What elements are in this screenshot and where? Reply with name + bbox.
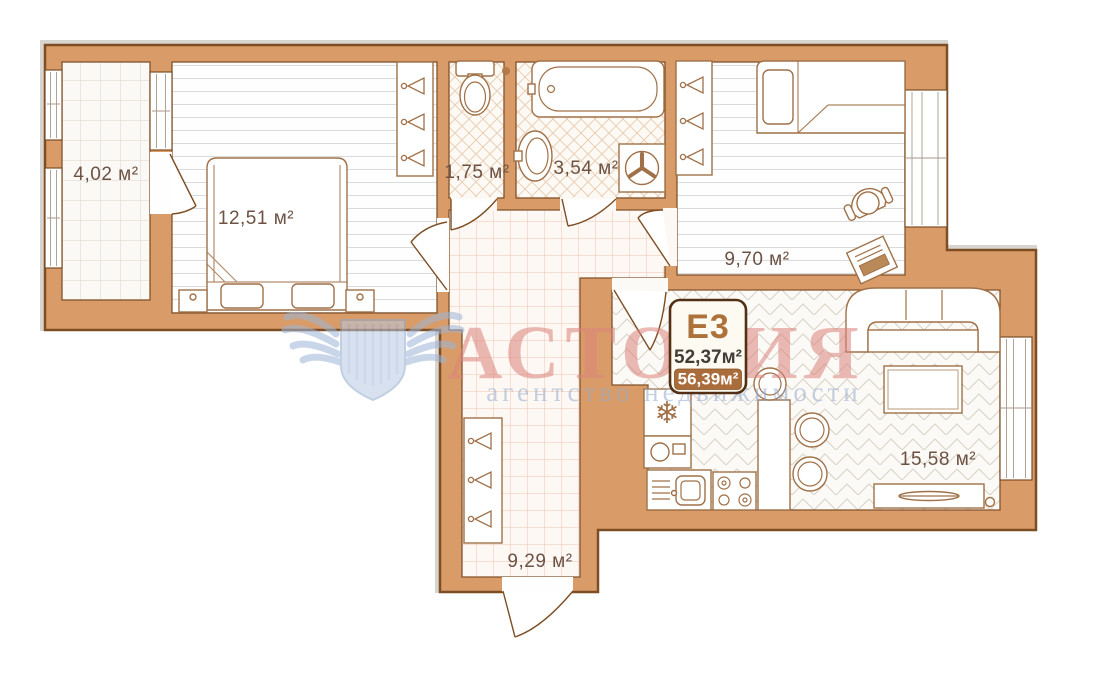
room-label-hallway: 9,29 м² [507, 551, 572, 572]
room-label-bedroom-second: 9,70 м² [724, 249, 789, 270]
agency-watermark: АСТОРИЯ агентство недвижимости [285, 311, 865, 407]
wardrobe-bedroom-main [397, 62, 433, 176]
kitchen-counter-appliance [644, 436, 691, 468]
wardrobe-hallway [464, 418, 502, 543]
bedroom-second-window [905, 90, 947, 227]
balcony-bedroom-window [150, 72, 172, 150]
tv-stand [874, 484, 995, 508]
washing-machine [619, 144, 665, 192]
room-label-bathroom: 3,54 м² [553, 158, 618, 179]
balcony-window-lower [45, 168, 62, 268]
kitchen-sink [647, 470, 711, 510]
double-bed [207, 158, 347, 310]
living-window [1000, 337, 1032, 480]
nightstand-right [346, 290, 374, 312]
unit-total-area: 56,39м² [678, 370, 739, 389]
entrance-door [502, 577, 573, 637]
single-bed [757, 61, 905, 133]
unit-badge: E3 52,37м² 56,39м² [670, 300, 746, 393]
unit-code: E3 [686, 308, 730, 346]
room-label-balcony: 4,02 м² [73, 164, 138, 185]
floor-plan: ❄ [0, 0, 1099, 677]
room-label-wc: 1,75 м² [444, 162, 509, 183]
balcony-window-upper [45, 70, 62, 140]
wardrobe-bedroom-second [676, 61, 712, 175]
nightstand-left [179, 290, 207, 312]
room-label-bedroom-main: 12,51 м² [218, 208, 294, 229]
toilet-paper-holder [502, 67, 510, 75]
coffee-table [884, 366, 962, 413]
bar-counter [758, 400, 790, 510]
sofa [846, 288, 1000, 352]
stove [713, 472, 756, 510]
unit-living-area: 52,37м² [674, 347, 742, 368]
room-label-kitchen-living: 15,58 м² [900, 449, 976, 470]
floor-plan-page: ❄ [0, 0, 1099, 677]
bathtub [528, 61, 664, 117]
